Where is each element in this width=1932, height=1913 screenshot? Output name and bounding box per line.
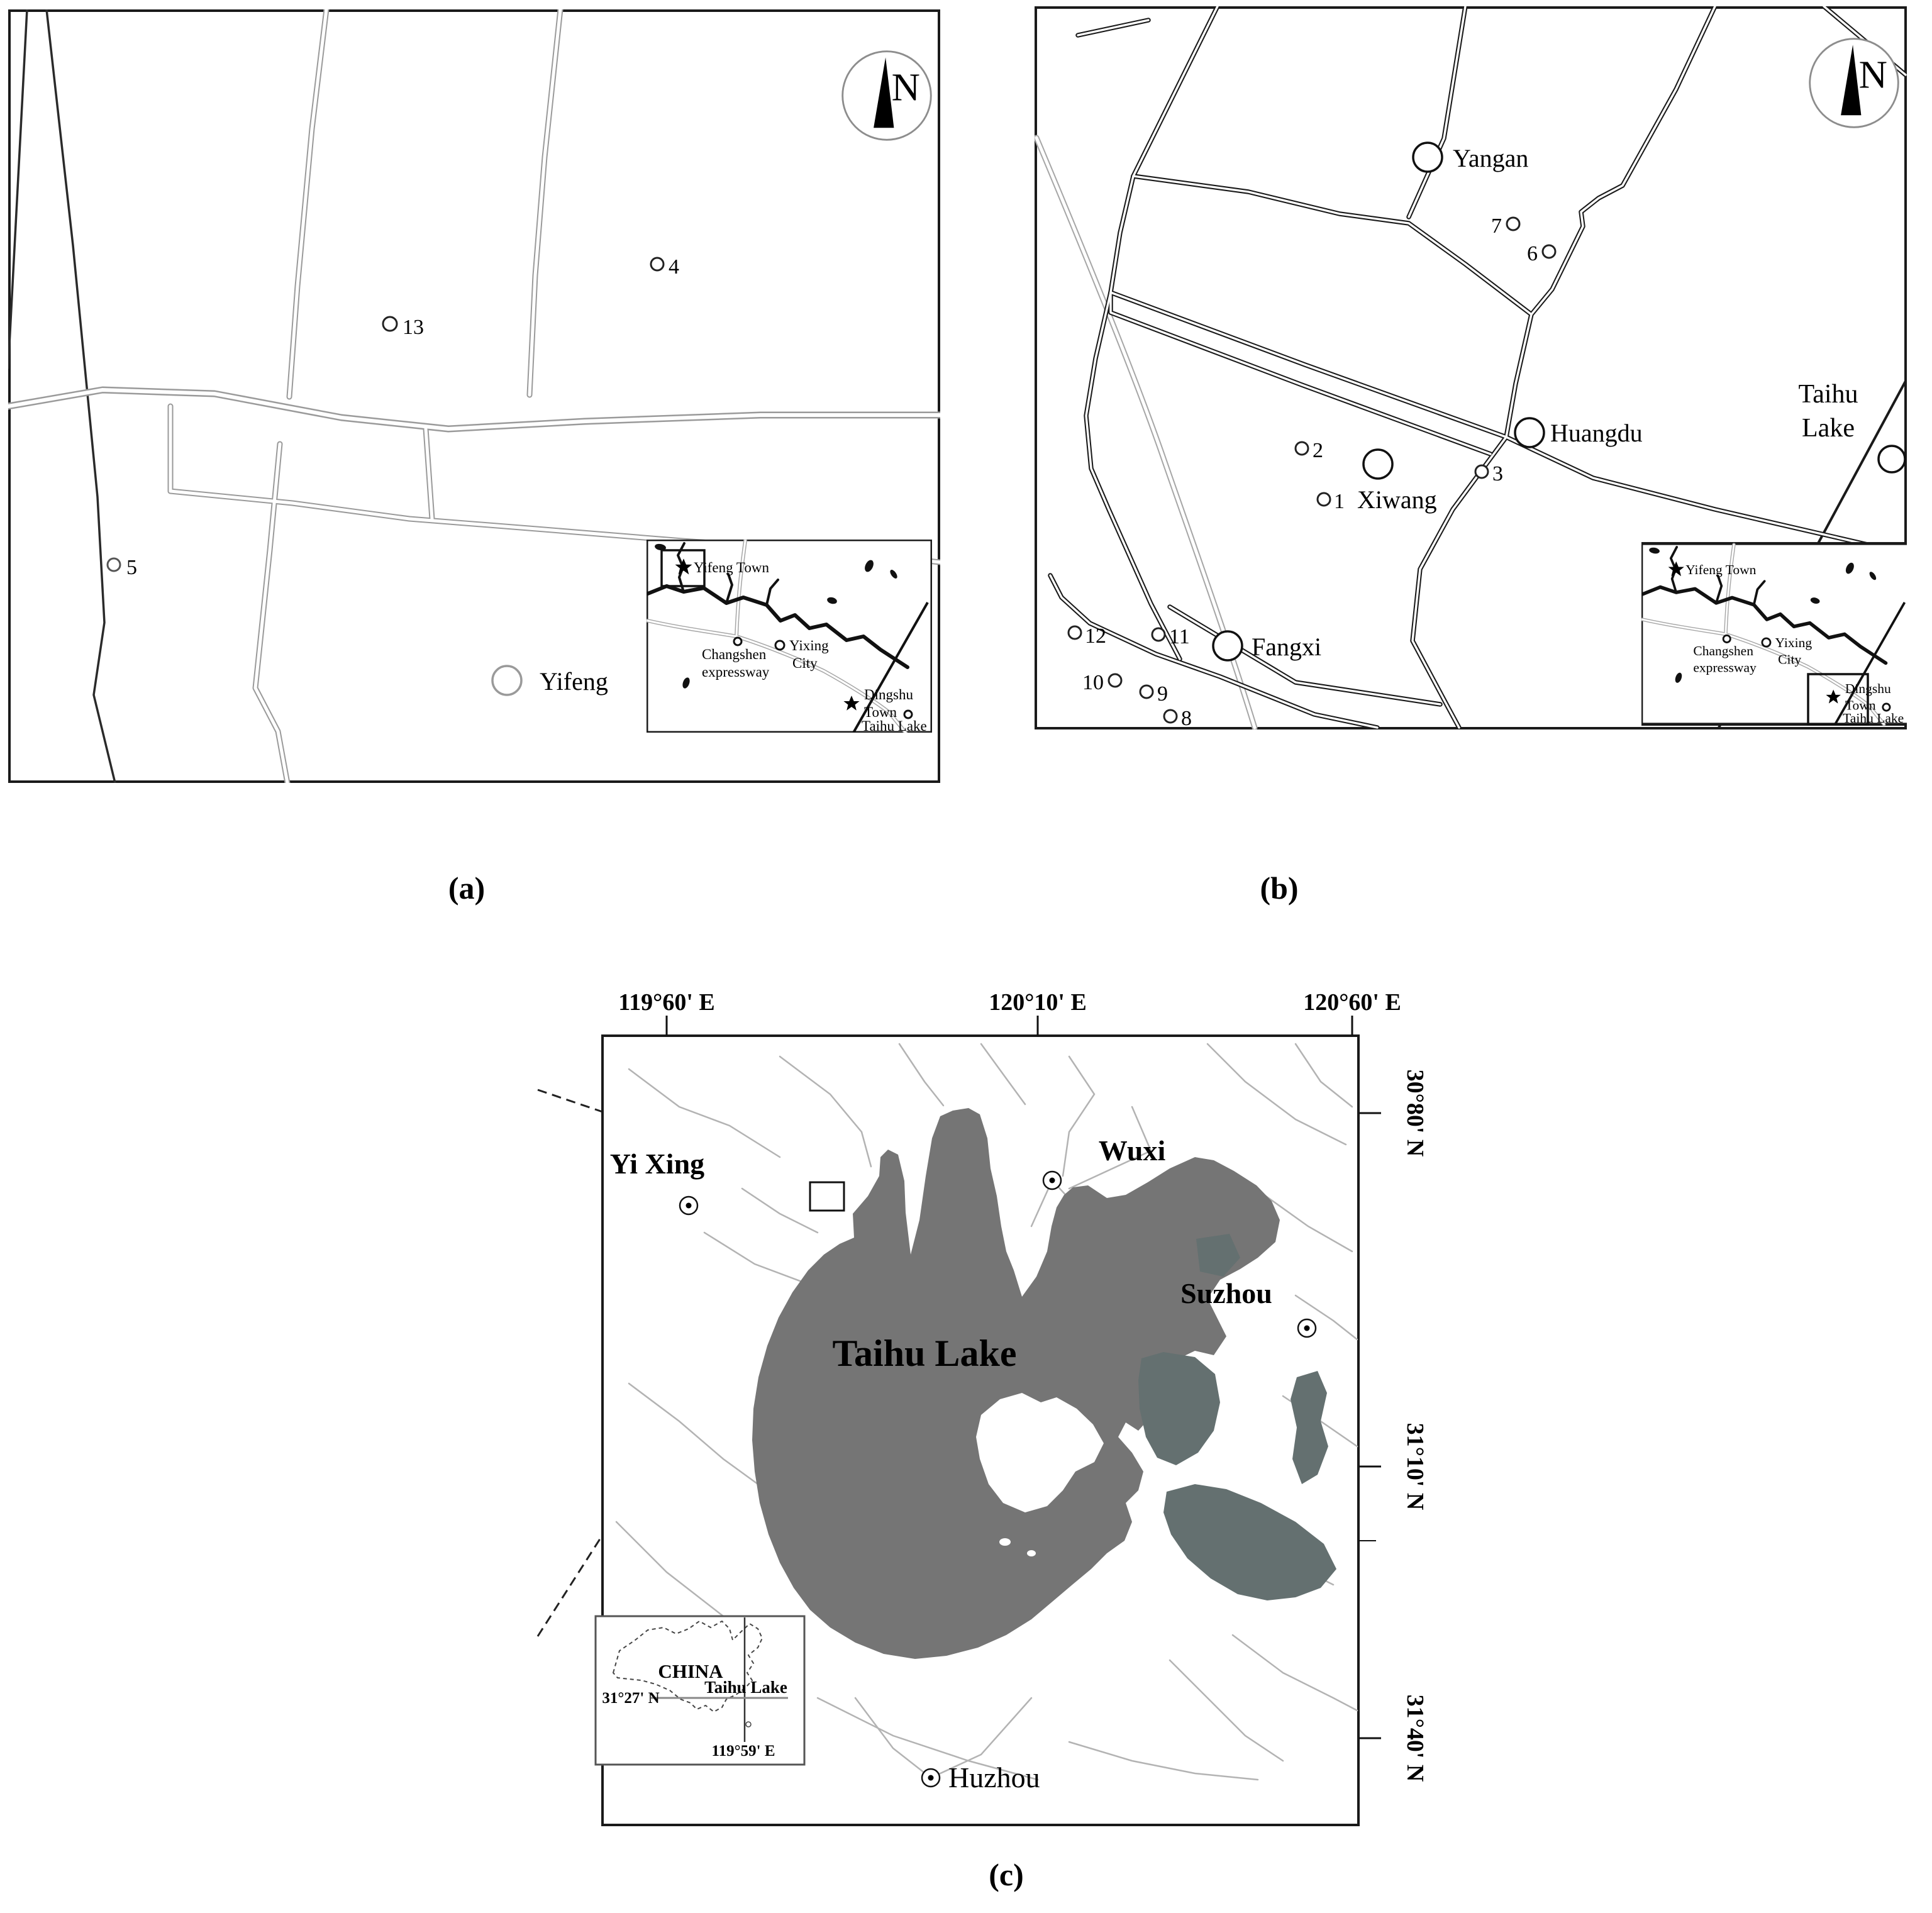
wuxi-city-label: Wuxi bbox=[1099, 1134, 1166, 1167]
y-axis: 30°80' N 31°10' N 31°40' N bbox=[1358, 1070, 1428, 1782]
compass-rose-b bbox=[1810, 39, 1899, 128]
suzhou-city-label: Suzhou bbox=[1180, 1277, 1272, 1309]
huangdu-label: Huangdu bbox=[1550, 419, 1643, 447]
y-axis-label-2: 31°10' N bbox=[1402, 1423, 1428, 1511]
site-10-label: 10 bbox=[1082, 671, 1104, 694]
caption-b: (b) bbox=[1241, 870, 1317, 906]
site-11-label: 11 bbox=[1169, 625, 1190, 648]
map-panel-c: Yi Xing Wuxi Suzhou Huzhou Taihu Lake 11… bbox=[516, 981, 1509, 1861]
x-axis-label-1: 119°60' E bbox=[618, 989, 715, 1016]
taihu-label-line2: Lake bbox=[1802, 414, 1855, 443]
site-1-label: 1 bbox=[1334, 490, 1345, 513]
islet-1 bbox=[999, 1538, 1011, 1546]
islet-2 bbox=[1027, 1550, 1036, 1556]
xiwang-label: Xiwang bbox=[1357, 485, 1437, 514]
yifeng-town-marker: Yifeng bbox=[492, 666, 608, 696]
x-axis-label-2: 120°10' E bbox=[989, 989, 1087, 1016]
china-inset: CHINA Taihu Lake 31°27' N 119°59' E bbox=[596, 1616, 804, 1765]
x-axis: 119°60' E 120°10' E 120°60' E bbox=[618, 989, 1401, 1036]
site-12-label: 12 bbox=[1085, 624, 1106, 648]
taihu-label-line1: Taihu bbox=[1798, 380, 1858, 409]
site-3-label: 3 bbox=[1492, 462, 1503, 485]
yixing-city-label: Yi Xing bbox=[610, 1148, 704, 1180]
huzhou-city-label: Huzhou bbox=[948, 1761, 1040, 1794]
yangan-town-marker: Yangan bbox=[1413, 143, 1528, 172]
taihu-lake-marker-b bbox=[1879, 446, 1905, 472]
map-panel-b: Yangan 7 6 Huangdu 2 Xiwang 1 3 Taihu La… bbox=[1035, 6, 1907, 729]
site-5-label: 5 bbox=[126, 556, 137, 579]
yangan-label: Yangan bbox=[1453, 144, 1528, 172]
inset-lon-label: 119°59' E bbox=[712, 1743, 775, 1760]
yifeng-label: Yifeng bbox=[540, 667, 608, 696]
taihu-lake-label-c: Taihu Lake bbox=[833, 1333, 1017, 1374]
site-13-label: 13 bbox=[402, 316, 424, 339]
y-axis-label-1: 30°80' N bbox=[1402, 1070, 1428, 1157]
inset-lat-label: 31°27' N bbox=[602, 1690, 659, 1707]
fangxi-label: Fangxi bbox=[1252, 633, 1321, 661]
site-8-label: 8 bbox=[1181, 707, 1192, 729]
huangdu-town-marker: Huangdu bbox=[1515, 418, 1643, 447]
y-axis-label-3: 31°40' N bbox=[1402, 1695, 1428, 1782]
location-inset-a bbox=[647, 540, 932, 734]
x-axis-label-3: 120°60' E bbox=[1303, 989, 1401, 1016]
map-panel-a: 4 13 5 Yifeng bbox=[8, 9, 940, 783]
site-4-label: 4 bbox=[669, 255, 679, 279]
fangxi-town-marker: Fangxi bbox=[1213, 631, 1321, 661]
caption-a: (a) bbox=[429, 870, 504, 906]
china-inset-taihu-label: Taihu Lake bbox=[704, 1678, 787, 1697]
site-6-label: 6 bbox=[1527, 242, 1538, 265]
site-7-label: 7 bbox=[1491, 214, 1502, 238]
site-2-label: 2 bbox=[1313, 439, 1323, 462]
site-9-label: 9 bbox=[1157, 682, 1168, 706]
caption-c: (c) bbox=[969, 1856, 1044, 1893]
compass-rose-a bbox=[843, 52, 931, 140]
